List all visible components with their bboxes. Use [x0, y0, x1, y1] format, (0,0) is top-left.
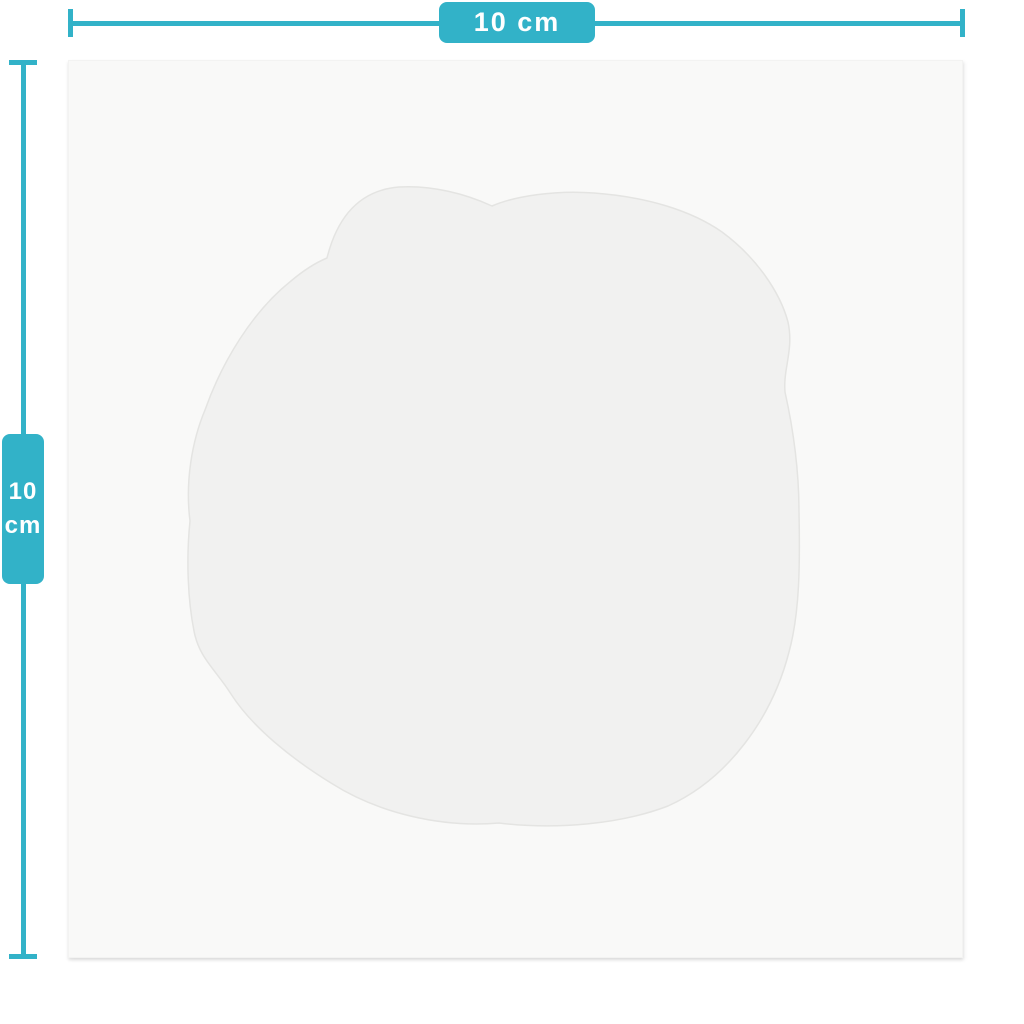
- height-dimension-label: 10 cm: [2, 434, 44, 584]
- width-value-text: 10 cm: [474, 7, 561, 38]
- product-size-diagram: 10 cm 10 cm: [0, 0, 1024, 1024]
- height-value-text: 10: [9, 475, 38, 509]
- width-dimension-endcap-right: [960, 9, 965, 37]
- height-unit-text: cm: [5, 509, 42, 543]
- height-dimension-endcap-top: [9, 60, 37, 65]
- width-dimension-label: 10 cm: [439, 2, 595, 43]
- width-dimension-endcap-left: [68, 9, 73, 37]
- height-dimension-endcap-bottom: [9, 954, 37, 959]
- product-canvas: [68, 60, 963, 958]
